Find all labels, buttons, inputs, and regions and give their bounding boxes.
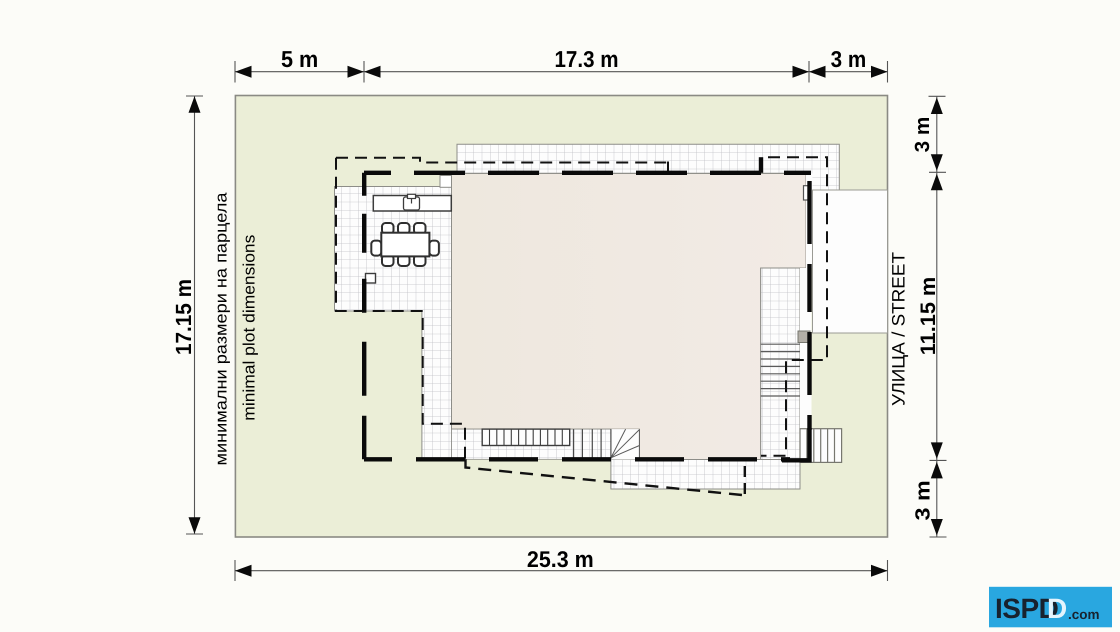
svg-text:3 m: 3 m: [912, 480, 935, 520]
svg-text:.com: .com: [1068, 607, 1100, 622]
svg-text:17.15 m: 17.15 m: [171, 279, 196, 355]
svg-text:УЛИЦА / STREET: УЛИЦА / STREET: [889, 252, 909, 406]
svg-text:25.3 m: 25.3 m: [527, 546, 594, 572]
svg-text:17.3 m: 17.3 m: [555, 46, 619, 72]
svg-text:D: D: [1047, 593, 1067, 624]
svg-text:минимални размери на парцела: минимални размери на парцела: [213, 192, 231, 466]
svg-text:11.15 m: 11.15 m: [917, 277, 940, 356]
svg-text:minimal plot dimensions: minimal plot dimensions: [241, 235, 259, 421]
svg-text:3 m: 3 m: [831, 46, 867, 72]
svg-text:5 m: 5 m: [281, 46, 318, 72]
svg-text:3 m: 3 m: [911, 117, 934, 153]
